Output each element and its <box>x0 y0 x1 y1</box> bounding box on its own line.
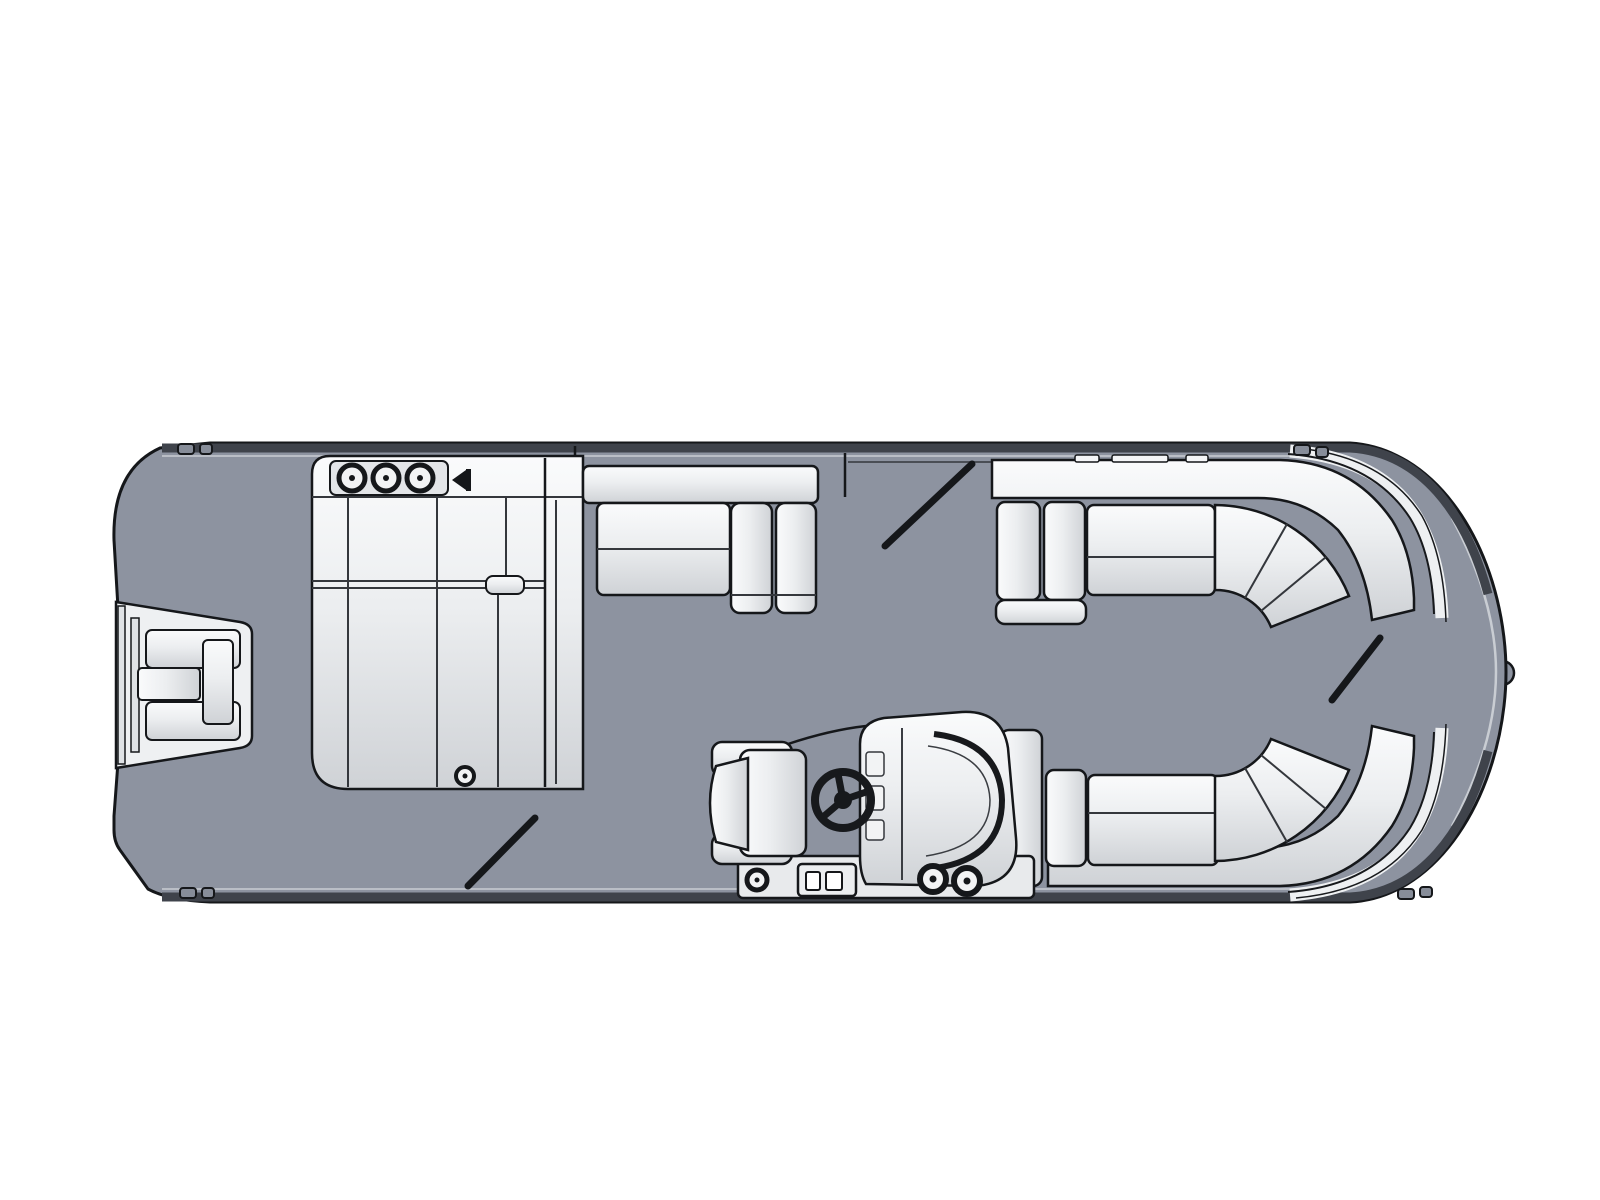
dash-switch <box>866 820 884 840</box>
cleat-icon <box>202 888 214 898</box>
hinge-dash <box>1075 455 1099 462</box>
motor-housing <box>203 640 233 724</box>
speaker-dot-icon <box>349 475 355 481</box>
mid-bench-end-cushion <box>776 503 816 613</box>
cleat-icon <box>200 444 212 454</box>
bracket-tab <box>826 872 842 890</box>
speaker-dot-icon <box>930 876 937 883</box>
stern-lounger <box>312 456 583 789</box>
latch-bar-icon <box>466 469 471 491</box>
hinge-dash <box>1112 455 1168 462</box>
dash-switch <box>866 752 884 776</box>
mid-bench-backrest <box>583 466 818 503</box>
mid-bench <box>583 466 818 613</box>
bracket-tab <box>806 872 820 890</box>
boat-floor-plan <box>0 0 1600 1200</box>
cleat-icon <box>1420 887 1432 897</box>
deck-latch-dot-icon <box>755 878 760 883</box>
chair-backrest <box>710 758 748 850</box>
speaker-dot-icon <box>417 475 423 481</box>
couch-arm-cushion <box>997 502 1040 600</box>
wheel-hub <box>834 791 852 809</box>
helm-console <box>860 712 1016 886</box>
cleat-icon <box>1398 889 1414 899</box>
motor-arm <box>138 668 200 700</box>
cleat-icon <box>1294 445 1310 455</box>
stern-motor-well <box>116 602 252 768</box>
couch-seat <box>1088 775 1218 865</box>
couch-seat <box>1087 505 1215 595</box>
speaker-dot-icon <box>964 878 971 885</box>
hinge-dash <box>1186 455 1208 462</box>
stern-lounger-body <box>312 456 583 789</box>
couch-arm-cushion <box>1046 770 1086 866</box>
speaker-dot-icon <box>383 475 389 481</box>
couch-arm-footer <box>996 600 1086 624</box>
cleat-icon <box>180 888 196 898</box>
deck-latch-dot-icon <box>463 774 468 779</box>
captains-chair <box>710 742 806 864</box>
mid-bench-end-cushion <box>731 503 772 613</box>
lounger-bolster <box>486 576 524 594</box>
cleat-icon <box>178 444 194 454</box>
transom-bar <box>118 606 125 764</box>
chair-seat <box>740 750 806 856</box>
couch-arm-cushion <box>1044 502 1085 600</box>
floor-plan-canvas <box>0 0 1600 1200</box>
cleat-icon <box>1316 447 1328 457</box>
